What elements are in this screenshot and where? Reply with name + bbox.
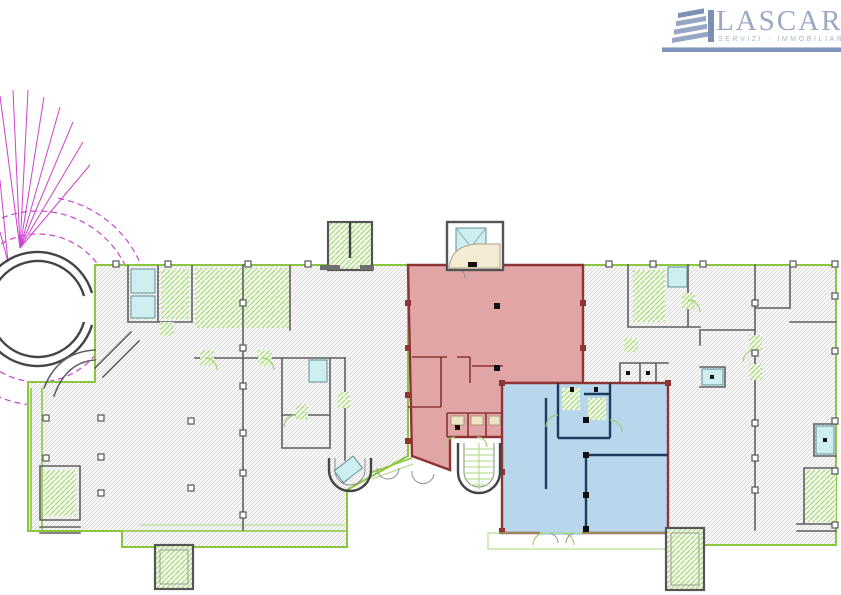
stairwell-tower-top bbox=[320, 222, 374, 270]
column bbox=[494, 303, 500, 309]
terrace-outline bbox=[488, 533, 672, 549]
ramp-wall-outer bbox=[0, 252, 92, 366]
building-icon bbox=[672, 4, 716, 46]
ramp-fan-lines bbox=[0, 90, 90, 262]
logo-rule bbox=[662, 47, 841, 52]
floor-plan bbox=[0, 0, 841, 595]
agency-logo: LASCARI SERVIZI · IMMOBILIARI bbox=[660, 0, 841, 56]
listing-floorplan-page: LASCARI SERVIZI · IMMOBILIARI bbox=[0, 0, 841, 595]
elevator-tower bbox=[447, 222, 503, 270]
logo-title: LASCARI bbox=[716, 6, 838, 36]
stairwell-tower-bottom-right bbox=[666, 528, 704, 590]
ramp-wall-inner bbox=[0, 261, 84, 357]
entrance-u-stair bbox=[458, 443, 500, 493]
column bbox=[494, 365, 500, 371]
unit-blue-highlight bbox=[488, 380, 672, 549]
stairwell-tower-bottom-left bbox=[155, 545, 193, 589]
logo-subtitle: SERVIZI · IMMOBILIARI bbox=[718, 36, 840, 43]
